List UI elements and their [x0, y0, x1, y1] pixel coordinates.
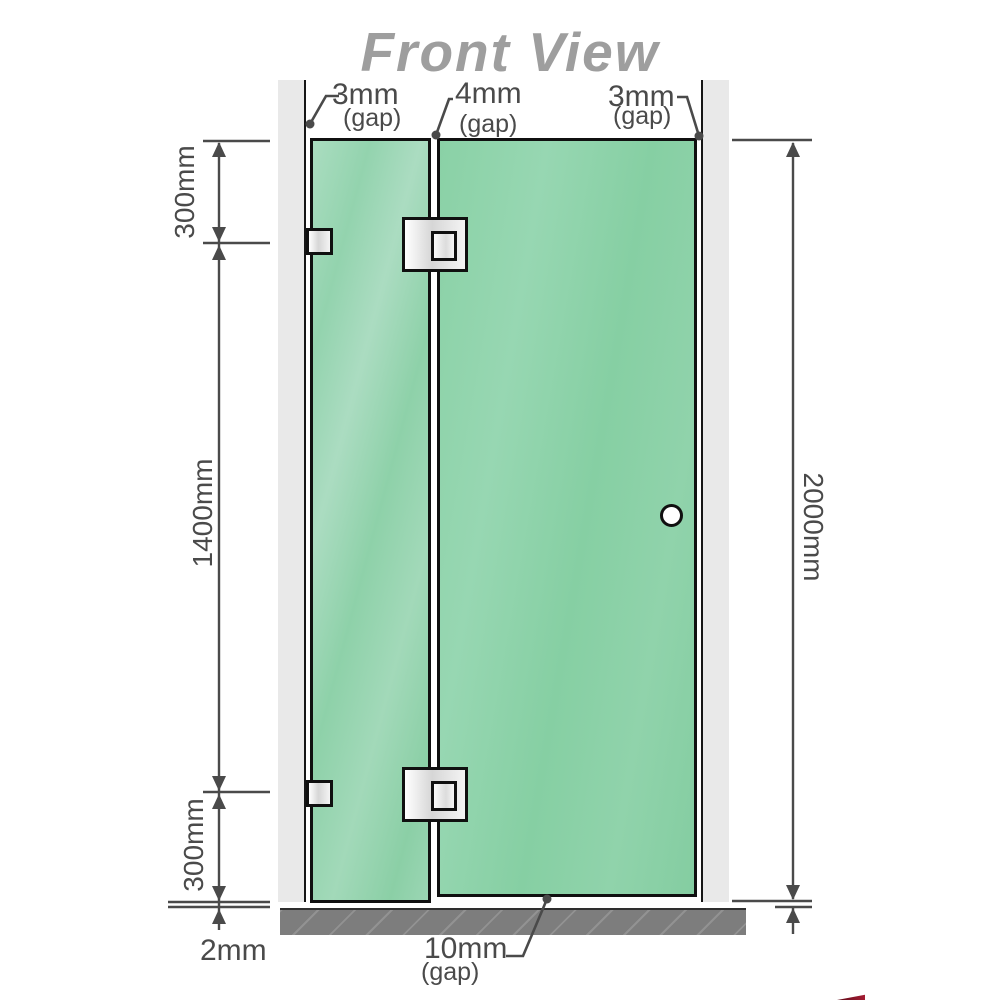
gap-label-right-note: (gap) — [613, 104, 671, 129]
dim-label-2mm: 2mm — [200, 936, 267, 966]
gap-label-middle-value: 4mm — [455, 79, 522, 109]
gap-label-middle-note: (gap) — [459, 112, 517, 137]
dim-label-bottom-300mm: 300mm — [180, 765, 210, 925]
gap-label-left-note: (gap) — [343, 106, 401, 131]
front-view-diagram: Front View — [0, 0, 1000, 1000]
gap-leader-lines — [310, 96, 699, 956]
gap-label-bottom-note: (gap) — [421, 960, 479, 985]
dim-label-2000mm: 2000mm — [797, 427, 827, 627]
gap-leader-dots — [306, 120, 704, 904]
dim-label-top-300mm: 300mm — [171, 112, 201, 272]
dimension-lines — [0, 0, 1000, 1000]
dim-label-1400mm: 1400mm — [189, 423, 219, 603]
